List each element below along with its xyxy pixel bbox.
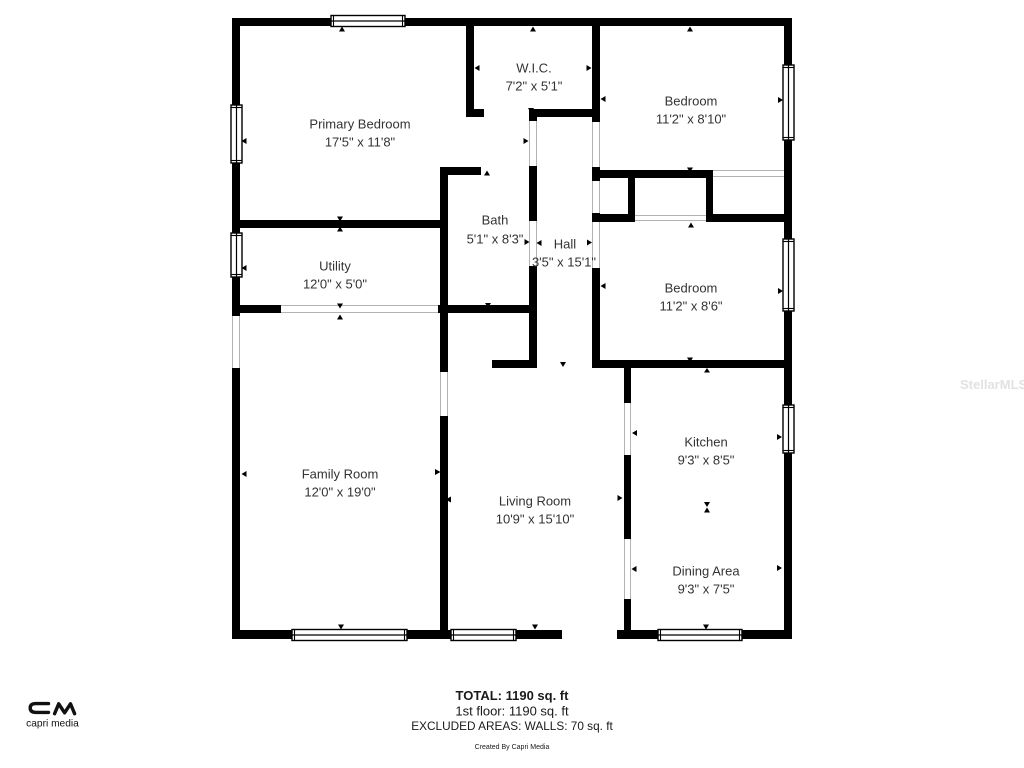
svg-text:Family Room: Family Room bbox=[302, 467, 379, 482]
svg-text:7'2" x 5'1": 7'2" x 5'1" bbox=[506, 79, 563, 94]
svg-text:EXCLUDED AREAS: WALLS: 70 sq.: EXCLUDED AREAS: WALLS: 70 sq. ft bbox=[411, 719, 613, 733]
svg-text:9'3" x 8'5": 9'3" x 8'5" bbox=[678, 453, 735, 468]
svg-text:Bedroom: Bedroom bbox=[665, 94, 718, 109]
svg-text:Utility: Utility bbox=[319, 259, 351, 274]
svg-text:9'3" x 7'5": 9'3" x 7'5" bbox=[678, 582, 735, 597]
svg-text:1st floor: 1190 sq. ft: 1st floor: 1190 sq. ft bbox=[455, 704, 569, 719]
svg-text:Primary Bedroom: Primary Bedroom bbox=[309, 117, 410, 132]
svg-text:3'5" x 15'1": 3'5" x 15'1" bbox=[532, 255, 596, 270]
svg-text:W.I.C.: W.I.C. bbox=[516, 61, 551, 76]
svg-text:5'1" x 8'3": 5'1" x 8'3" bbox=[467, 232, 524, 247]
svg-text:12'0" x 5'0": 12'0" x 5'0" bbox=[303, 277, 367, 292]
svg-text:Hall: Hall bbox=[554, 237, 577, 252]
svg-text:TOTAL: 1190 sq. ft: TOTAL: 1190 sq. ft bbox=[456, 688, 570, 703]
svg-text:12'0" x 19'0": 12'0" x 19'0" bbox=[304, 485, 376, 500]
svg-text:Living Room: Living Room bbox=[499, 494, 571, 509]
svg-text:11'2" x 8'6": 11'2" x 8'6" bbox=[659, 299, 722, 314]
svg-text:17'5" x 11'8": 17'5" x 11'8" bbox=[325, 135, 396, 150]
svg-text:Dining Area: Dining Area bbox=[672, 564, 740, 579]
svg-text:Kitchen: Kitchen bbox=[684, 435, 727, 450]
svg-text:11'2" x 8'10": 11'2" x 8'10" bbox=[656, 112, 727, 127]
svg-text:StellarMLS: StellarMLS bbox=[960, 377, 1024, 392]
svg-text:capri media: capri media bbox=[26, 719, 79, 730]
svg-text:Bath: Bath bbox=[482, 213, 509, 228]
svg-text:Bedroom: Bedroom bbox=[665, 281, 718, 296]
svg-text:Created By Capri Media: Created By Capri Media bbox=[475, 744, 550, 751]
svg-text:10'9" x 15'10": 10'9" x 15'10" bbox=[496, 512, 575, 527]
